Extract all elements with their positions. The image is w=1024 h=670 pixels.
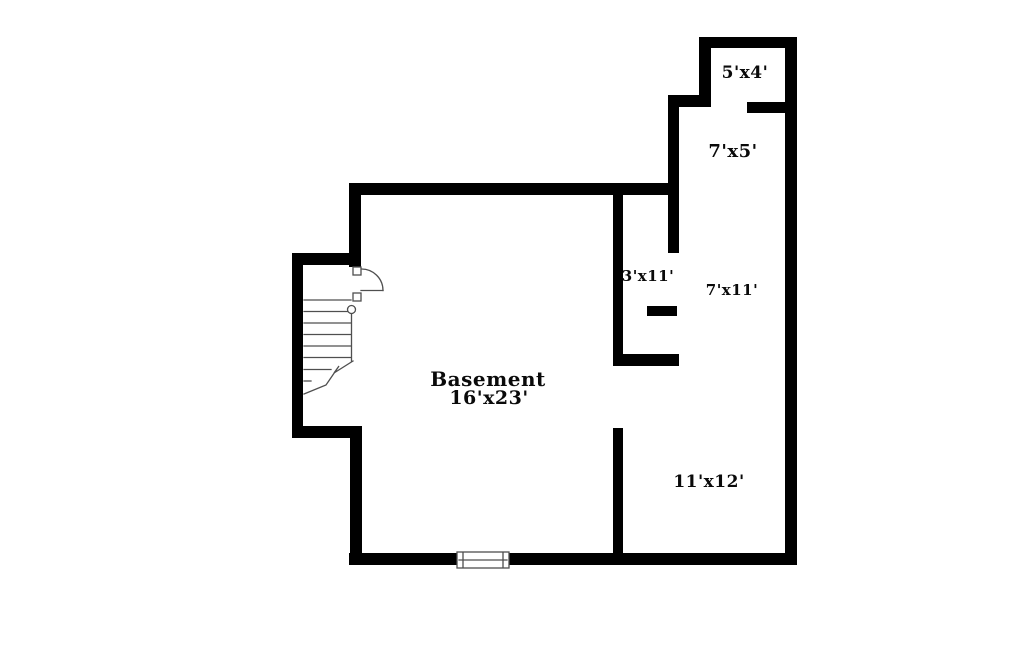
canvas-background [0, 0, 1024, 670]
floor-plan: Basement 16'x23' 5'x4' 7'x5' 3'x11' 7'x1… [0, 0, 1024, 670]
room-dims-7x11: 7'x11' [706, 281, 758, 299]
wall-basement-left-lower [350, 426, 362, 565]
wall-alcove-left [292, 253, 303, 438]
wall-basement-top [349, 183, 679, 195]
wall-room5x4-top [699, 37, 797, 48]
room-dims-7x5: 7'x5' [708, 141, 757, 162]
wall-alcove-top [292, 253, 361, 265]
room-dims-basement: 16'x23' [449, 387, 528, 409]
wall-outer-right [785, 37, 797, 565]
room-dims-11x12: 11'x12' [673, 472, 744, 492]
wall-interior-lower [613, 428, 623, 553]
wall-basement-bottom [349, 553, 797, 565]
wall-stub [647, 306, 677, 316]
room-dims-5x4: 5'x4' [722, 63, 769, 83]
wall-hall-left [668, 95, 679, 253]
wall-closet-bottom [615, 354, 679, 366]
window-basement [457, 552, 509, 568]
wall-divider-5x4 [747, 102, 785, 113]
room-dims-3x11: 3'x11' [622, 267, 674, 285]
stair-newel-post [348, 306, 356, 314]
wall-alcove-bottom [292, 426, 362, 438]
door-jamb-top [353, 267, 361, 275]
door-jamb-bottom [353, 293, 361, 301]
